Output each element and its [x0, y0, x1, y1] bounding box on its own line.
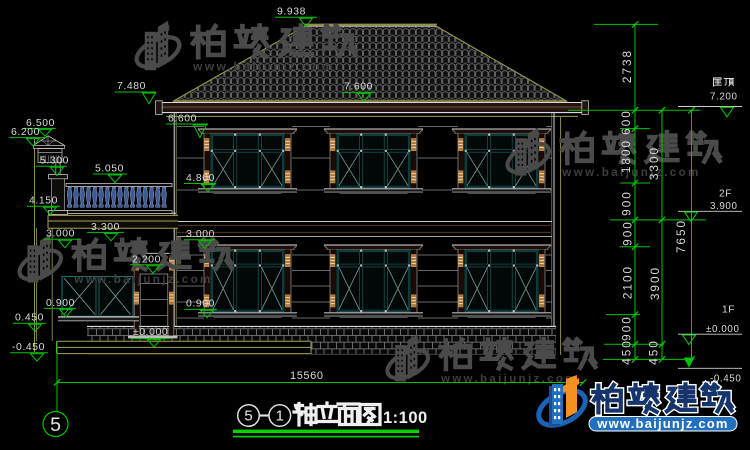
svg-text:0.900: 0.900 [186, 299, 215, 310]
svg-text:1: 1 [276, 408, 284, 425]
svg-text:3.000: 3.000 [186, 229, 215, 240]
svg-text:www.baijunjz.com: www.baijunjz.com [192, 60, 335, 74]
svg-text:-0.450: -0.450 [12, 342, 45, 353]
svg-text:450: 450 [647, 339, 661, 365]
svg-text:450: 450 [620, 339, 634, 365]
svg-text:3.300: 3.300 [91, 222, 120, 233]
svg-text:3900: 3900 [648, 266, 662, 300]
svg-text:4.150: 4.150 [29, 196, 58, 207]
svg-text:1F: 1F [722, 305, 735, 316]
svg-text:3300: 3300 [647, 146, 661, 180]
svg-text:2F: 2F [719, 189, 732, 200]
svg-text:±0.000: ±0.000 [133, 327, 168, 338]
svg-text:www.baijunjz.com: www.baijunjz.com [596, 416, 728, 431]
svg-text:0.900: 0.900 [46, 298, 75, 309]
svg-text:600: 600 [619, 109, 633, 135]
svg-text:9.938: 9.938 [277, 7, 306, 18]
svg-text:7.480: 7.480 [117, 81, 146, 92]
svg-text:6.600: 6.600 [168, 114, 197, 125]
svg-text:900: 900 [620, 315, 634, 341]
svg-text:7.200: 7.200 [710, 91, 738, 102]
svg-text:2738: 2738 [620, 49, 634, 83]
svg-text:7.600: 7.600 [344, 82, 373, 93]
svg-text:2.200: 2.200 [132, 254, 161, 265]
svg-text:7650: 7650 [674, 219, 688, 253]
svg-text:0.450: 0.450 [15, 312, 44, 323]
svg-text:2100: 2100 [621, 265, 635, 299]
svg-text:5: 5 [50, 414, 61, 436]
svg-text:900: 900 [620, 190, 634, 216]
svg-text:1:100: 1:100 [383, 409, 428, 427]
svg-text:±0.000: ±0.000 [706, 324, 740, 335]
svg-text:15560: 15560 [290, 370, 324, 382]
svg-text:5.300: 5.300 [40, 156, 69, 167]
svg-text:1800: 1800 [619, 139, 633, 173]
svg-text:4.800: 4.800 [186, 173, 215, 184]
svg-text:5.050: 5.050 [95, 164, 124, 175]
svg-text:3.900: 3.900 [710, 201, 738, 212]
svg-text:5: 5 [244, 408, 252, 425]
svg-text:www.baijunjz.com: www.baijunjz.com [73, 273, 212, 286]
svg-text:6.200: 6.200 [11, 127, 40, 138]
svg-text:900: 900 [621, 220, 635, 246]
svg-text:3.000: 3.000 [46, 229, 75, 240]
